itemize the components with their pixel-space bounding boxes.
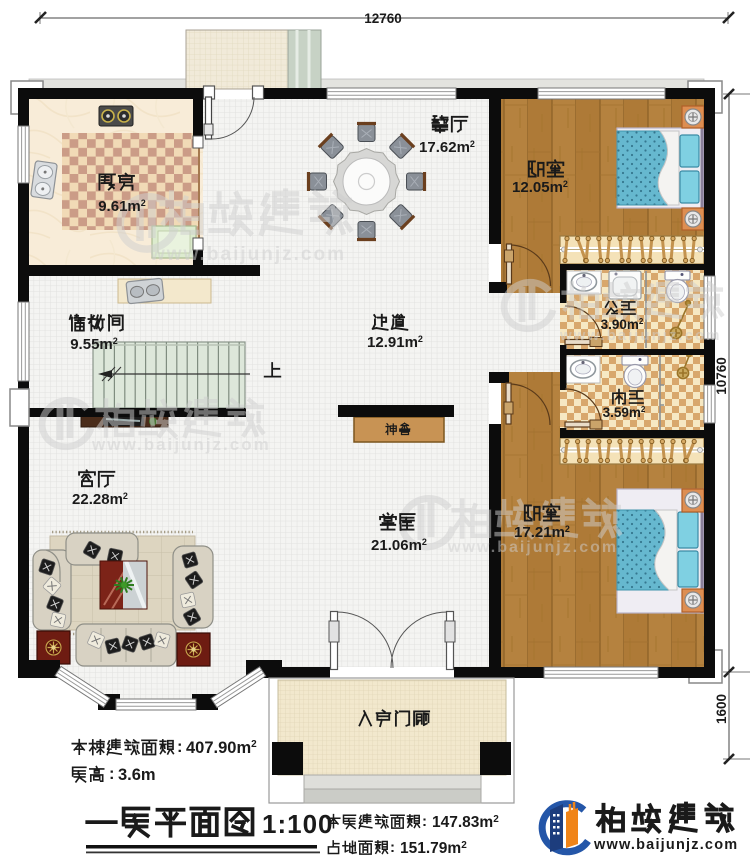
svg-text::: : xyxy=(422,813,427,830)
svg-text:1:100: 1:100 xyxy=(262,809,334,839)
svg-text:12.05m2: 12.05m2 xyxy=(512,179,568,196)
svg-text::: : xyxy=(390,839,395,856)
svg-text:12.91m2: 12.91m2 xyxy=(367,334,423,351)
svg-text:17.62m2: 17.62m2 xyxy=(419,139,475,156)
svg-text:3.6m: 3.6m xyxy=(118,766,156,784)
svg-text:1600: 1600 xyxy=(714,694,729,724)
svg-text:www.baijunjz.com: www.baijunjz.com xyxy=(559,327,721,344)
svg-text:3.90m2: 3.90m2 xyxy=(601,317,644,332)
svg-text:151.79m2: 151.79m2 xyxy=(400,840,467,857)
svg-text:3.59m2: 3.59m2 xyxy=(603,405,646,420)
svg-text:407.90m2: 407.90m2 xyxy=(186,739,257,757)
svg-text:www.baijunjz.com: www.baijunjz.com xyxy=(149,244,346,265)
svg-text:21.06m2: 21.06m2 xyxy=(371,537,427,554)
svg-text::: : xyxy=(177,738,183,756)
svg-text:12760: 12760 xyxy=(364,11,402,26)
svg-text:9.55m2: 9.55m2 xyxy=(70,336,118,353)
svg-text:9.61m2: 9.61m2 xyxy=(98,198,146,215)
svg-text:10760: 10760 xyxy=(714,357,729,395)
svg-text:17.21m2: 17.21m2 xyxy=(514,524,570,541)
svg-text:22.28m2: 22.28m2 xyxy=(72,491,128,508)
svg-text:www.baijunjz.com: www.baijunjz.com xyxy=(91,435,271,454)
svg-text::: : xyxy=(109,765,115,783)
svg-text:www.baijunjz.com: www.baijunjz.com xyxy=(593,837,738,853)
svg-text:www.baijunjz.com: www.baijunjz.com xyxy=(447,539,618,556)
svg-text:147.83m2: 147.83m2 xyxy=(432,814,499,831)
